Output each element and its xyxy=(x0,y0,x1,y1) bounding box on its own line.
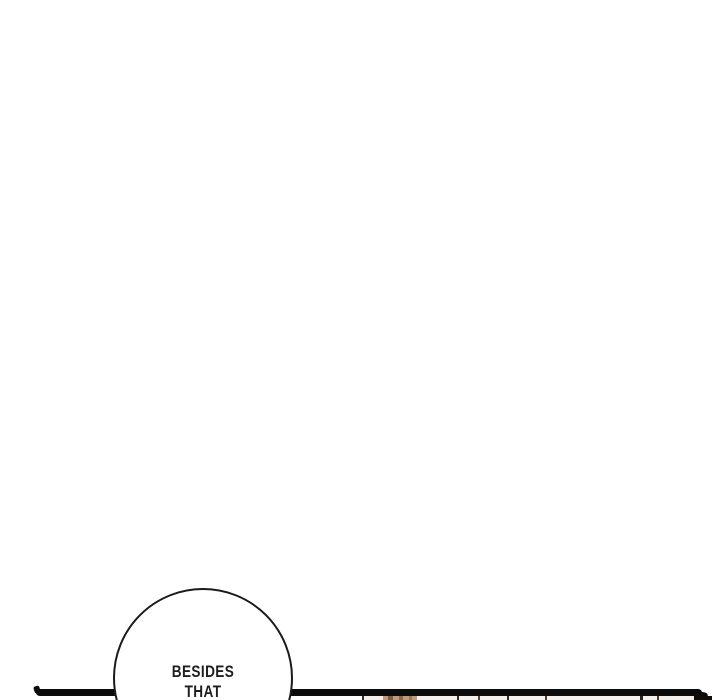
sliver-patch xyxy=(388,696,393,700)
comic-page: BESIDES THAT xyxy=(0,0,720,700)
sliver-patch xyxy=(545,696,547,700)
next-panel-sliver xyxy=(0,696,720,700)
speech-bubble-text: BESIDES THAT xyxy=(131,662,275,700)
speech-line-2: THAT xyxy=(131,682,275,700)
sliver-patch xyxy=(640,696,643,700)
sliver-patch xyxy=(457,696,459,700)
sliver-patch xyxy=(362,696,364,700)
sliver-patch xyxy=(399,696,403,700)
sliver-patch xyxy=(478,696,480,700)
sliver-patch xyxy=(409,696,412,700)
sliver-patch xyxy=(507,696,509,700)
sliver-patch xyxy=(657,696,659,700)
speech-line-1: BESIDES xyxy=(131,662,275,682)
